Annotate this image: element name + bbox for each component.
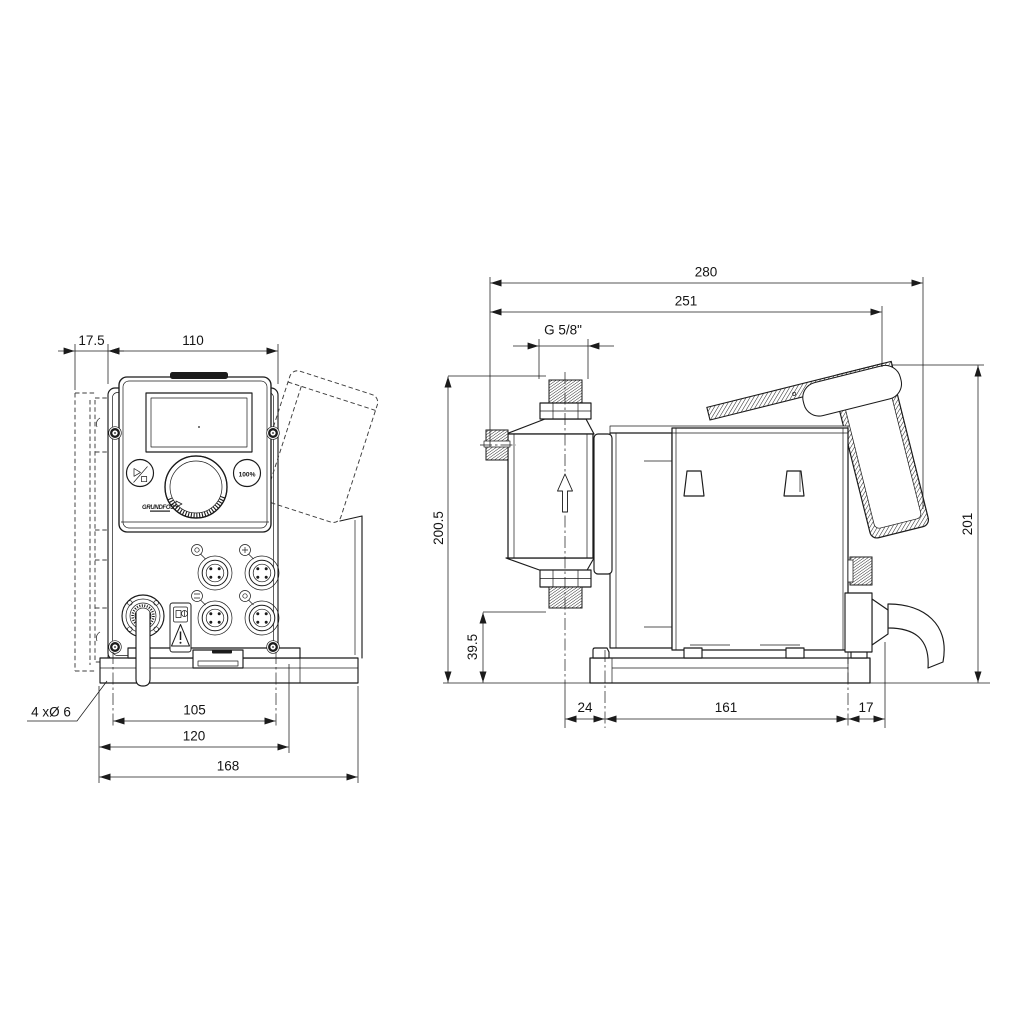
dim-overall-height: 201 [960, 513, 975, 536]
dim-hole-spacing: 105 [183, 703, 206, 718]
cable-gland-box [845, 593, 872, 652]
control-cube: 100% GRUNDFOS [119, 372, 271, 532]
dim-overall-length: 280 [695, 265, 718, 280]
dim-cube-width: 110 [182, 333, 204, 348]
dim-connection-thread: G 5/8" [544, 323, 582, 338]
suction-thread [549, 587, 582, 608]
hundred-percent-label: 100% [239, 471, 256, 478]
display [146, 393, 252, 452]
dim-length-to-rear: 251 [675, 294, 698, 309]
drive-housing [610, 426, 848, 658]
dimensional-drawing: 100% GRUNDFOS [0, 0, 1024, 1024]
logo-text: GRUNDFOS [142, 505, 174, 511]
discharge-thread [549, 380, 582, 403]
click-wheel[interactable] [165, 456, 227, 518]
dim-rear-offset: 17 [858, 700, 873, 715]
m12-connector[interactable] [198, 601, 232, 635]
cable-front [136, 612, 150, 686]
screw [267, 427, 280, 440]
dim-head-offset: 24 [577, 700, 593, 715]
m12-connector[interactable] [245, 601, 279, 635]
head-body [508, 434, 593, 558]
cube-top-tab [170, 372, 228, 379]
screw [109, 427, 122, 440]
dim-mounting-holes-note: 4 xØ 6 [31, 705, 71, 720]
dim-connection-height: 200.5 [431, 511, 446, 545]
m12-connector[interactable] [245, 556, 279, 590]
dim-base-width: 168 [217, 759, 240, 774]
screw [109, 641, 122, 654]
head-backplate [594, 434, 612, 574]
housing-tab [684, 471, 704, 496]
display-pixel [198, 426, 200, 428]
screw [267, 641, 280, 654]
start-stop-button[interactable] [127, 460, 154, 487]
m12-connector[interactable] [198, 556, 232, 590]
hundred-percent-button[interactable]: 100% [234, 460, 261, 487]
housing-tab [784, 471, 804, 496]
label-plate [170, 603, 191, 652]
dim-bracket-width: 120 [183, 729, 206, 744]
dim-side-offset: 17.5 [78, 333, 104, 348]
dim-suction-height: 39.5 [465, 634, 480, 660]
dim-side-hole-spacing: 161 [715, 700, 738, 715]
